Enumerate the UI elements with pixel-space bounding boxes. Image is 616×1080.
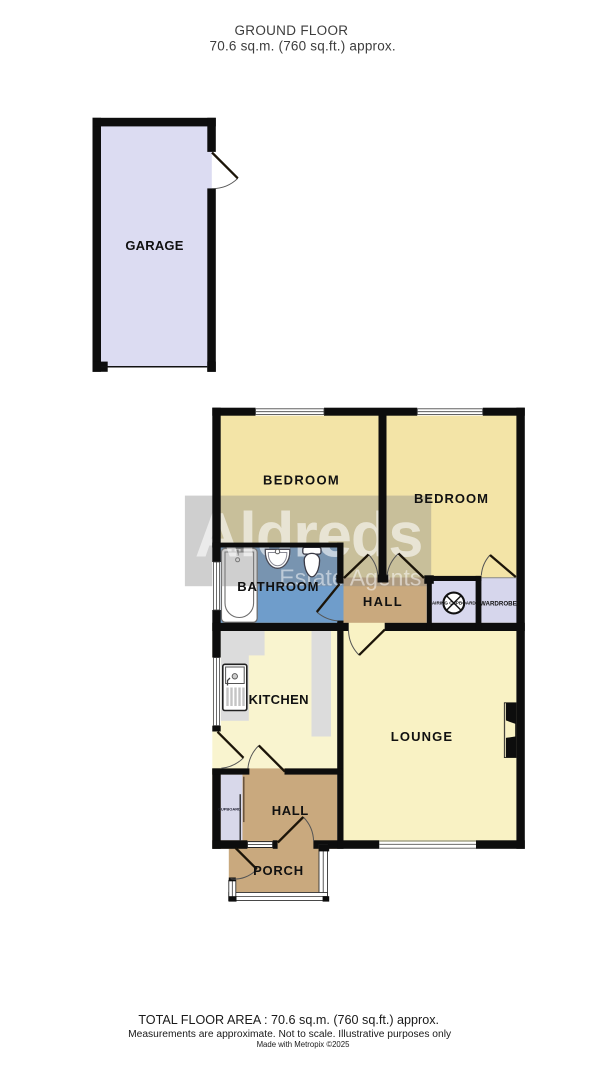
svg-text:Made with Metropix ©2025: Made with Metropix ©2025 xyxy=(257,1040,351,1049)
svg-text:Measurements are approximate.: Measurements are approximate. Not to sca… xyxy=(128,1029,452,1040)
svg-text:CUPBOARD: CUPBOARD xyxy=(218,806,241,811)
svg-text:KITCHEN: KITCHEN xyxy=(249,692,309,707)
svg-text:AIRING CUPBOARD: AIRING CUPBOARD xyxy=(432,601,477,606)
svg-text:LOUNGE: LOUNGE xyxy=(391,729,454,744)
svg-text:70.6 sq.m. (760 sq.ft.) approx: 70.6 sq.m. (760 sq.ft.) approx. xyxy=(210,39,396,54)
svg-text:WARDROBE: WARDROBE xyxy=(480,601,517,608)
svg-text:PORCH: PORCH xyxy=(253,863,304,878)
svg-text:BATHROOM: BATHROOM xyxy=(237,579,319,594)
svg-text:TOTAL FLOOR AREA : 70.6 sq.m.: TOTAL FLOOR AREA : 70.6 sq.m. (760 sq.ft… xyxy=(138,1013,439,1027)
svg-text:HALL: HALL xyxy=(272,803,309,818)
svg-text:GARAGE: GARAGE xyxy=(125,238,183,253)
svg-text:BEDROOM: BEDROOM xyxy=(414,491,489,506)
svg-text:HALL: HALL xyxy=(363,594,403,609)
svg-text:BEDROOM: BEDROOM xyxy=(263,473,340,488)
svg-text:GROUND FLOOR: GROUND FLOOR xyxy=(234,23,348,38)
